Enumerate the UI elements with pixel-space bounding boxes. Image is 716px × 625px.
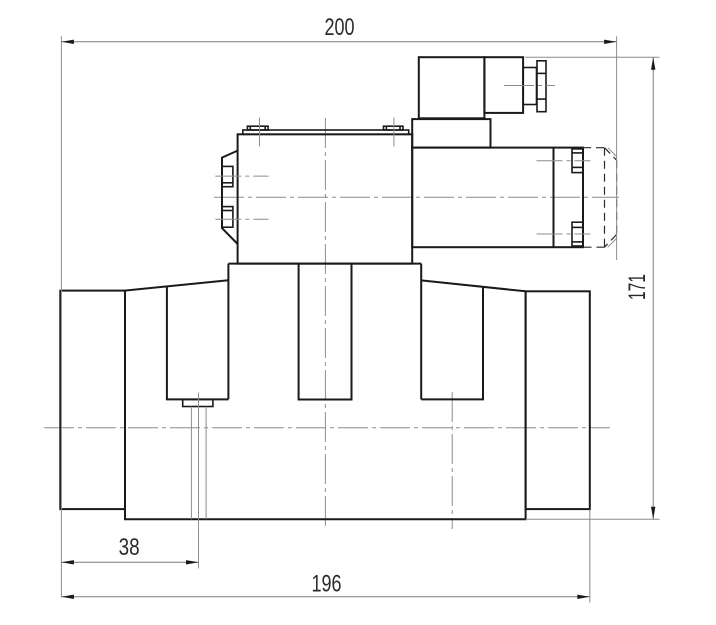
svg-text:171: 171 — [624, 274, 651, 300]
svg-text:38: 38 — [119, 534, 140, 561]
svg-text:200: 200 — [325, 14, 355, 41]
svg-text:196: 196 — [312, 570, 342, 597]
